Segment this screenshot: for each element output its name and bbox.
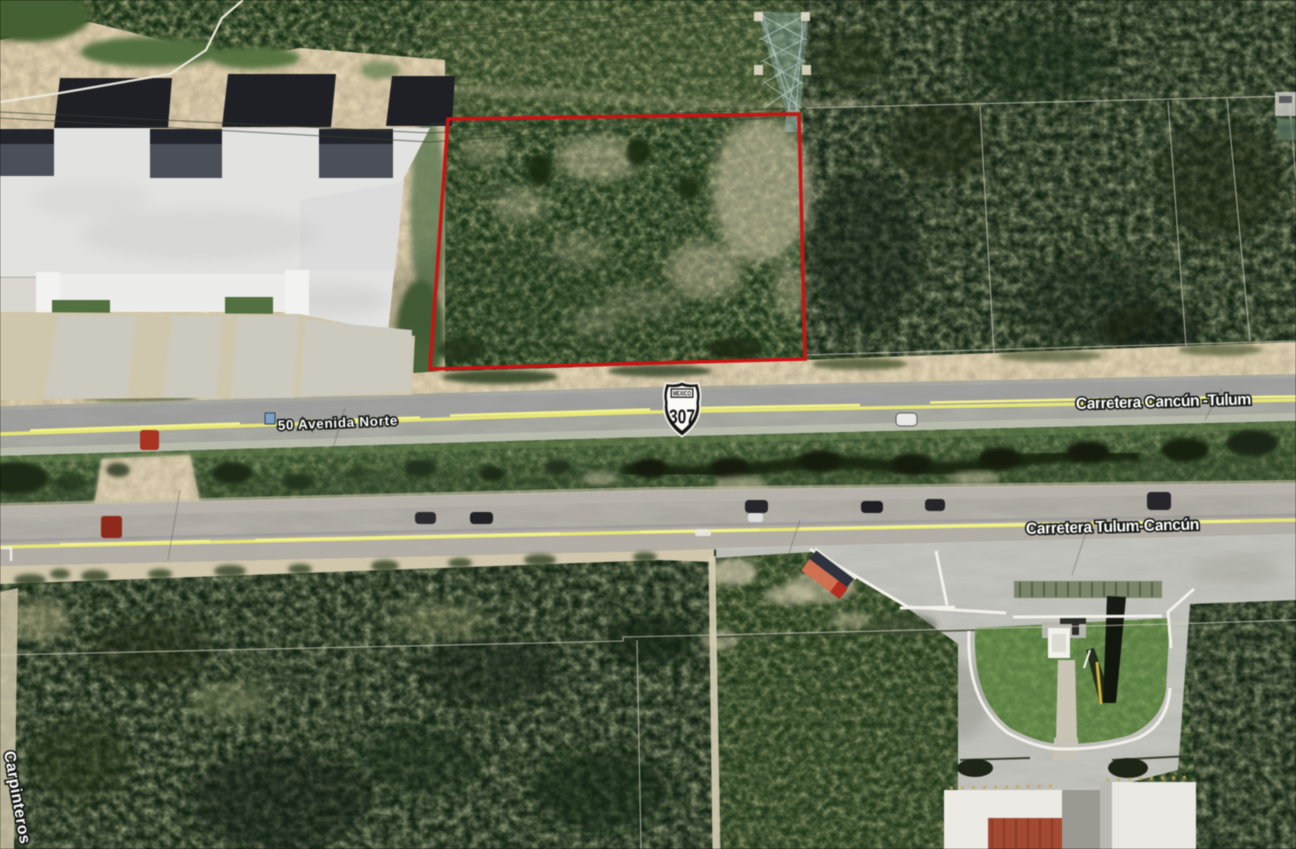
- svg-text:307: 307: [669, 407, 695, 429]
- svg-text:MEXICO: MEXICO: [673, 392, 691, 398]
